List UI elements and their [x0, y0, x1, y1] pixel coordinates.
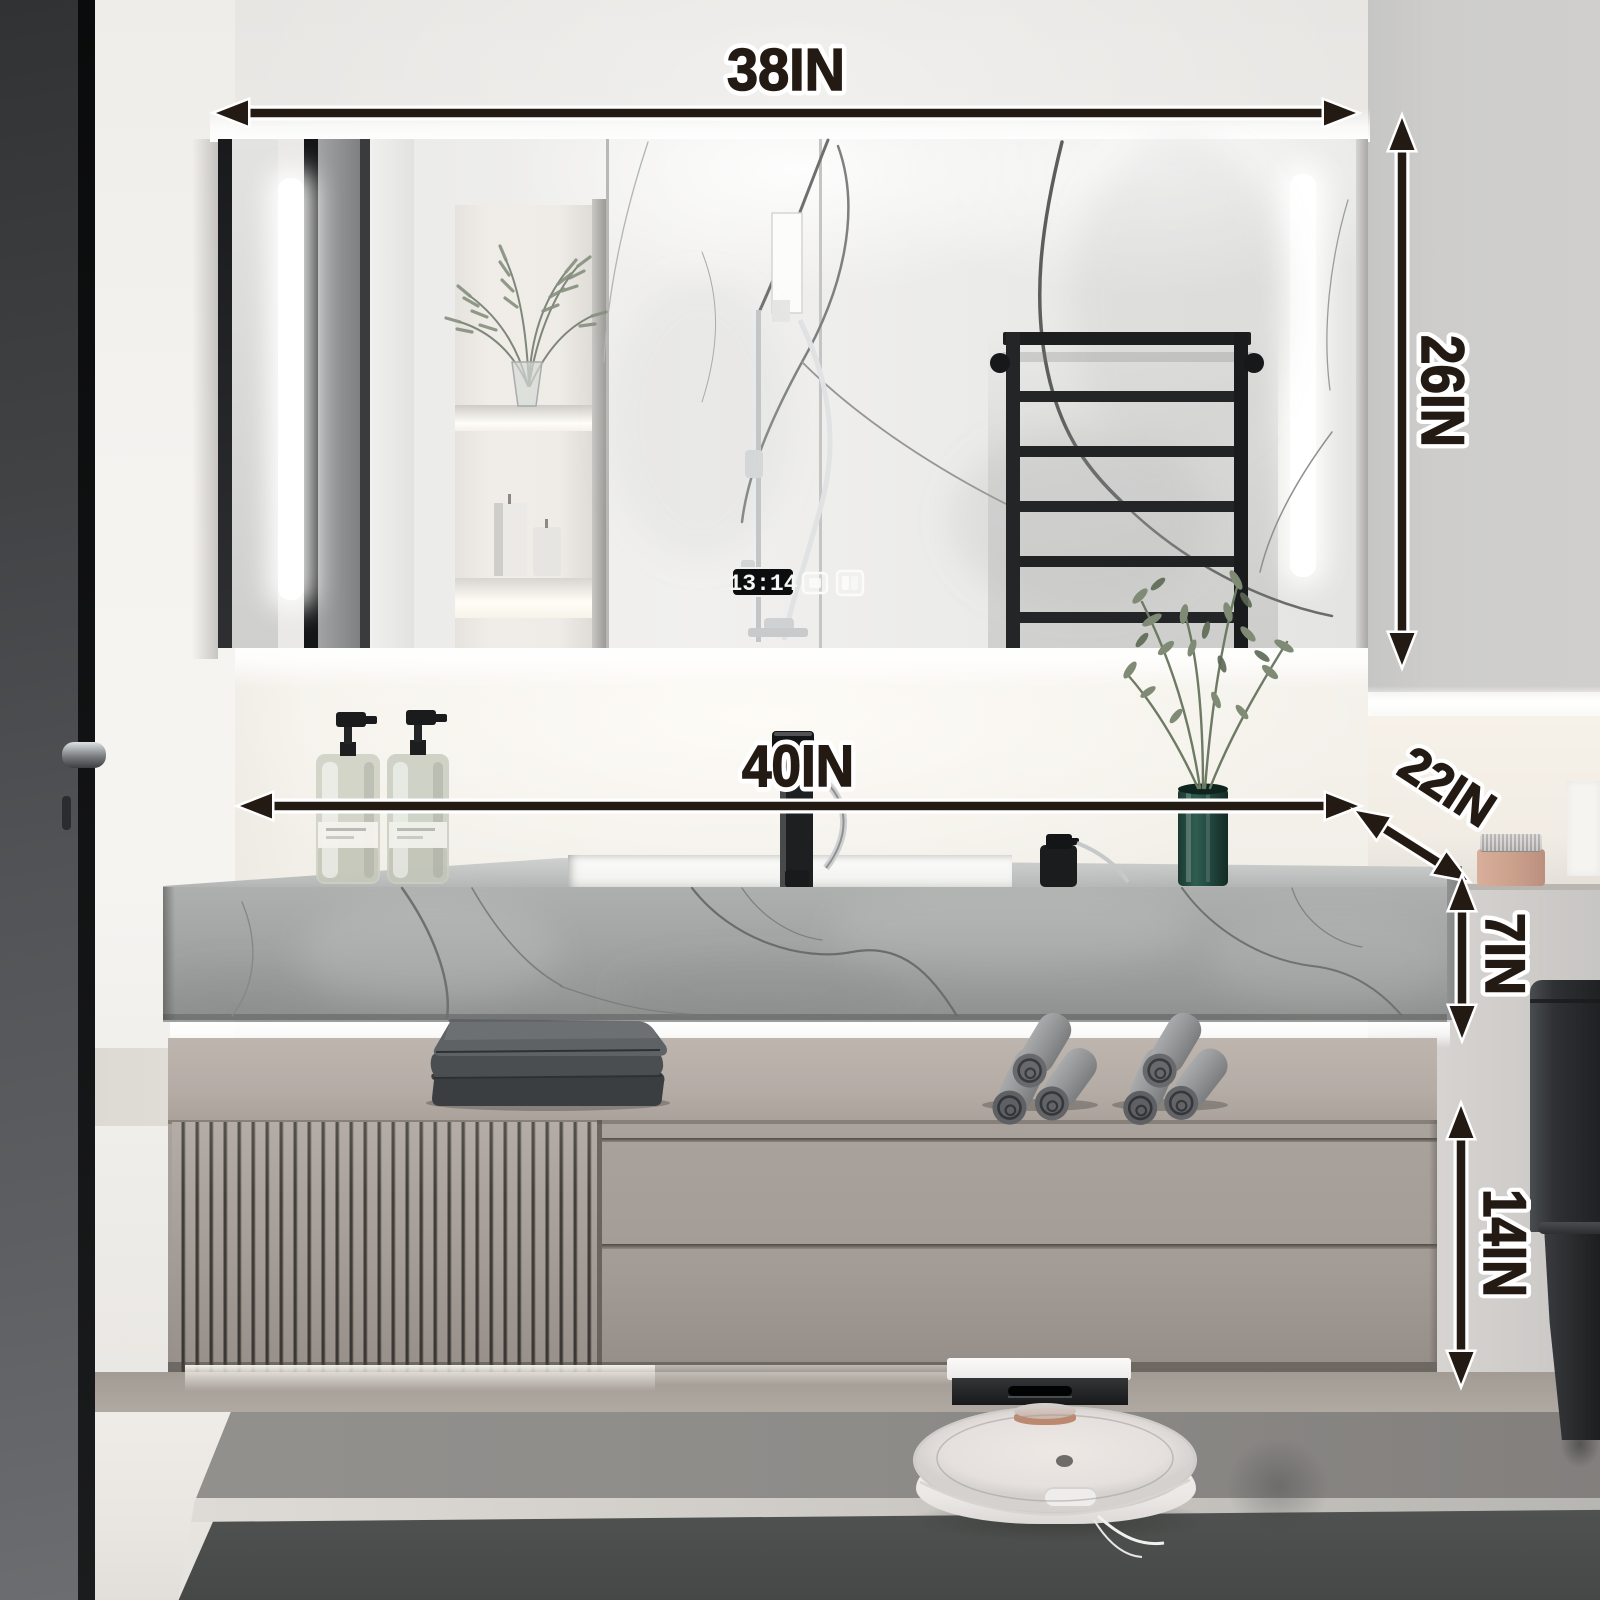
svg-text:40IN: 40IN: [742, 734, 854, 799]
svg-text:7IN: 7IN: [1474, 913, 1537, 995]
svg-text:26IN: 26IN: [1409, 335, 1476, 447]
svg-text:38IN: 38IN: [727, 37, 845, 103]
svg-text:14IN: 14IN: [1471, 1189, 1538, 1297]
svg-text:22IN: 22IN: [1389, 735, 1505, 838]
